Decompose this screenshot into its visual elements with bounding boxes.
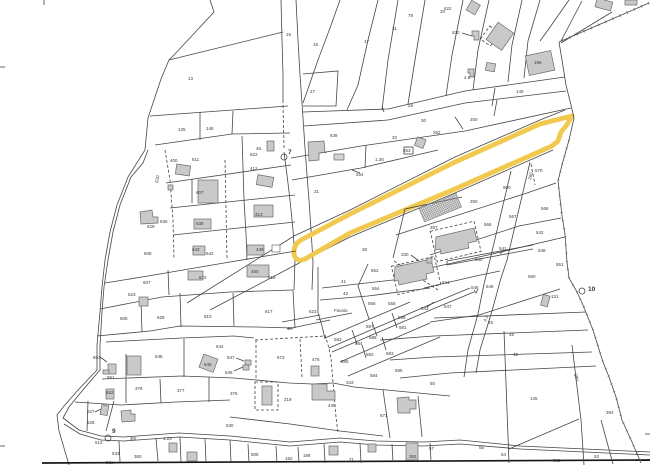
- svg-text:219: 219: [284, 397, 292, 402]
- svg-text:343: 343: [346, 380, 354, 385]
- svg-text:382: 382: [409, 454, 417, 459]
- svg-text:556: 556: [368, 301, 376, 306]
- svg-text:149: 149: [516, 89, 524, 94]
- svg-text:1.23: 1.23: [163, 436, 172, 441]
- svg-text:182: 182: [285, 456, 293, 461]
- svg-text:611: 611: [192, 157, 200, 162]
- svg-text:568: 568: [541, 206, 549, 211]
- svg-text:9: 9: [112, 428, 116, 435]
- svg-text:630: 630: [452, 30, 460, 35]
- svg-text:542: 542: [536, 230, 544, 235]
- svg-text:17: 17: [364, 39, 370, 44]
- svg-text:254: 254: [356, 172, 364, 177]
- svg-text:852: 852: [106, 390, 114, 395]
- svg-text:622: 622: [250, 152, 258, 157]
- svg-text:460: 460: [251, 269, 259, 274]
- svg-text:71: 71: [349, 457, 355, 462]
- svg-text:808: 808: [251, 452, 259, 457]
- svg-text:851: 851: [107, 375, 115, 380]
- svg-text:618: 618: [268, 275, 276, 280]
- svg-text:48: 48: [509, 332, 515, 337]
- svg-text:38: 38: [362, 247, 368, 252]
- svg-text:394: 394: [606, 410, 614, 415]
- svg-text:551: 551: [556, 262, 564, 267]
- svg-text:54: 54: [501, 452, 507, 457]
- svg-text:585: 585: [395, 368, 403, 373]
- svg-text:376: 376: [230, 391, 238, 396]
- svg-text:647: 647: [227, 355, 235, 360]
- svg-text:253: 253: [403, 148, 411, 153]
- svg-text:550: 550: [528, 274, 536, 279]
- svg-text:413: 413: [255, 212, 263, 217]
- svg-text:26: 26: [408, 103, 414, 108]
- svg-text:252: 252: [433, 130, 441, 135]
- svg-text:357: 357: [430, 225, 438, 230]
- svg-text:582: 582: [366, 352, 374, 357]
- svg-text:533: 533: [112, 451, 120, 456]
- svg-text:44: 44: [287, 326, 293, 331]
- svg-text:567: 567: [509, 214, 517, 219]
- svg-text:543: 543: [421, 306, 429, 311]
- svg-text:630: 630: [226, 423, 234, 428]
- svg-text:853: 853: [93, 355, 101, 360]
- svg-text:587: 587: [366, 324, 374, 329]
- svg-text:570: 570: [535, 168, 543, 173]
- svg-text:540: 540: [475, 257, 483, 262]
- svg-text:607: 607: [143, 280, 151, 285]
- svg-text:636: 636: [160, 219, 168, 224]
- svg-text:566: 566: [484, 222, 492, 227]
- svg-text:1.28: 1.28: [375, 157, 384, 162]
- svg-text:400: 400: [170, 158, 178, 163]
- svg-text:547: 547: [444, 304, 452, 309]
- svg-text:55: 55: [479, 445, 485, 450]
- svg-text:546: 546: [471, 285, 479, 290]
- svg-text:198: 198: [303, 453, 311, 458]
- svg-text:50: 50: [430, 381, 436, 386]
- svg-text:673: 673: [277, 355, 285, 360]
- svg-text:377: 377: [177, 388, 185, 393]
- svg-text:628: 628: [87, 420, 95, 425]
- svg-text:250: 250: [470, 117, 478, 122]
- svg-text:360: 360: [134, 454, 142, 459]
- svg-text:376: 376: [135, 386, 143, 391]
- svg-text:15: 15: [286, 32, 292, 37]
- svg-text:558: 558: [388, 301, 396, 306]
- svg-text:548: 548: [538, 248, 546, 253]
- svg-text:31: 31: [392, 26, 398, 31]
- svg-text:617: 617: [265, 309, 273, 314]
- svg-text:548: 548: [486, 284, 494, 289]
- svg-text:584: 584: [355, 341, 363, 346]
- svg-text:643: 643: [192, 247, 200, 252]
- svg-text:552: 552: [371, 268, 379, 273]
- svg-text:145: 145: [530, 396, 538, 401]
- svg-text:125: 125: [178, 127, 186, 132]
- svg-text:608: 608: [144, 251, 152, 256]
- svg-text:638: 638: [330, 133, 338, 138]
- svg-text:32: 32: [392, 135, 398, 140]
- svg-text:46.: 46.: [256, 146, 262, 151]
- svg-text:430: 430: [328, 403, 336, 408]
- svg-text:148: 148: [206, 126, 214, 131]
- svg-text:644: 644: [216, 344, 224, 349]
- svg-text:554: 554: [372, 286, 380, 291]
- svg-text:412: 412: [250, 166, 258, 171]
- svg-text:627: 627: [87, 409, 95, 414]
- svg-text:583: 583: [386, 351, 394, 356]
- svg-text:4.8: 4.8: [464, 75, 471, 80]
- svg-text:523: 523: [128, 292, 136, 297]
- svg-text:30r: 30r: [130, 436, 137, 441]
- svg-text:584: 584: [370, 373, 378, 378]
- svg-text:541: 541: [499, 246, 507, 251]
- svg-text:30: 30: [421, 118, 427, 123]
- svg-text:628: 628: [157, 315, 165, 320]
- svg-text:350: 350: [470, 199, 478, 204]
- svg-text:27: 27: [310, 89, 316, 94]
- svg-text:950: 950: [503, 185, 511, 190]
- svg-text:623: 623: [309, 309, 317, 314]
- svg-text:31: 31: [314, 189, 320, 194]
- svg-text:671: 671: [380, 413, 388, 418]
- svg-text:131: 131: [551, 294, 559, 299]
- svg-text:588: 588: [369, 335, 377, 340]
- svg-text:605: 605: [120, 316, 128, 321]
- svg-text:999: 999: [398, 315, 406, 320]
- svg-text:512: 512: [95, 440, 103, 445]
- svg-text:41: 41: [341, 279, 347, 284]
- svg-text:382: 382: [553, 458, 561, 463]
- svg-text:622: 622: [444, 6, 452, 11]
- svg-text:196: 196: [534, 60, 542, 65]
- svg-text:583: 583: [334, 337, 342, 342]
- svg-text:476: 476: [312, 357, 320, 362]
- svg-text:42: 42: [343, 291, 349, 296]
- svg-text:810: 810: [204, 314, 212, 319]
- svg-text:49: 49: [513, 352, 519, 357]
- svg-text:78: 78: [408, 13, 414, 18]
- svg-text:607: 607: [196, 190, 204, 195]
- svg-text:672: 672: [199, 275, 207, 280]
- svg-text:449: 449: [256, 247, 264, 252]
- svg-text:330: 330: [401, 252, 409, 257]
- svg-text:45: 45: [488, 320, 494, 325]
- svg-text:57: 57: [429, 446, 435, 451]
- svg-text:646: 646: [225, 370, 233, 375]
- svg-text:629: 629: [147, 224, 155, 229]
- svg-text:53a: 53a: [106, 460, 114, 465]
- svg-text:638: 638: [196, 221, 204, 226]
- svg-text:645: 645: [204, 362, 212, 367]
- svg-text:16: 16: [313, 42, 319, 47]
- svg-text:13: 13: [188, 76, 194, 81]
- svg-text:7: 7: [288, 149, 292, 156]
- svg-text:581: 581: [399, 325, 407, 330]
- svg-text:642: 642: [206, 251, 214, 256]
- svg-text:585: 585: [341, 359, 349, 364]
- svg-text:Favola: Favola: [334, 308, 348, 313]
- svg-text:648: 648: [155, 354, 163, 359]
- svg-text:52: 52: [594, 454, 600, 459]
- svg-text:544: 544: [442, 280, 450, 285]
- svg-text:10: 10: [588, 286, 596, 293]
